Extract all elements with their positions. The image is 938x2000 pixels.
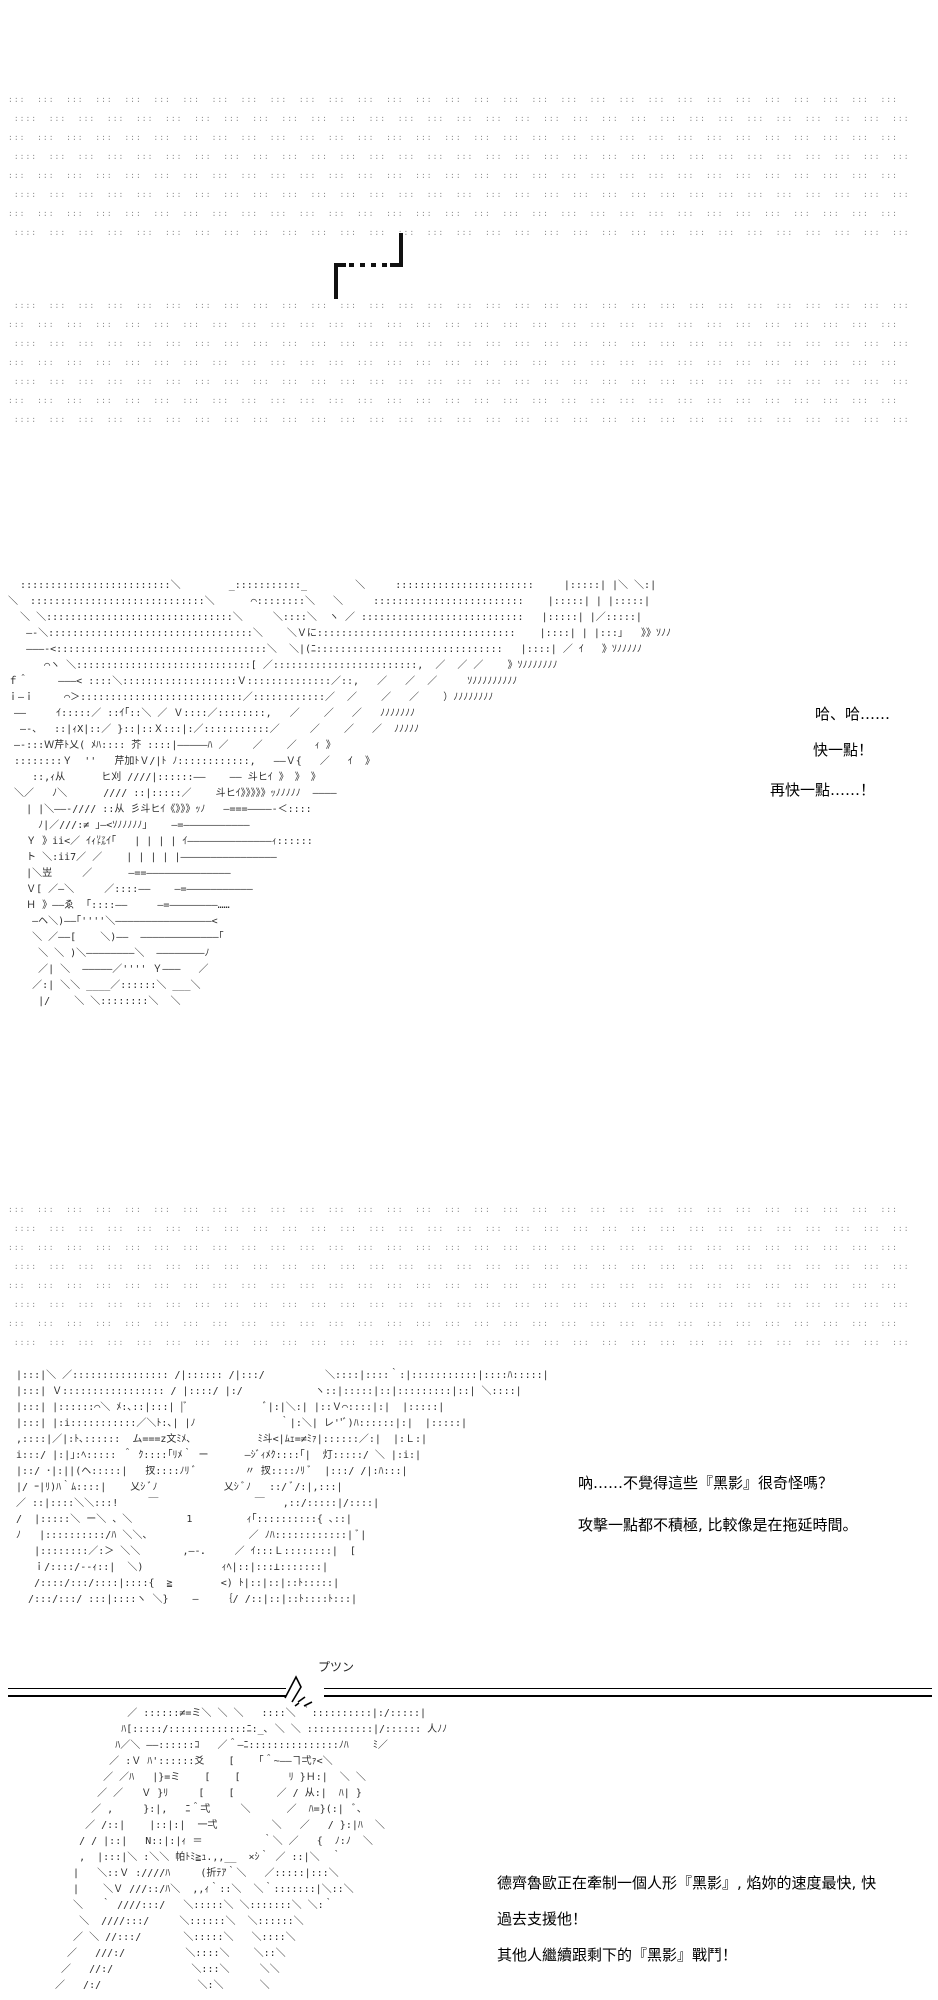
- crowd-pattern-block-2: :::: ::: ::: ::: ::: ::: ::: ::: ::: :::…: [8, 296, 921, 429]
- speech-ha-ha: 哈、哈……: [813, 705, 892, 723]
- scene-break-divider-left: [8, 1688, 286, 1697]
- speech-faster: 快一點！: [811, 741, 875, 759]
- crowd-pattern-block-1: ::: ::: ::: ::: ::: ::: ::: ::: ::: ::: …: [8, 90, 921, 242]
- snap-zigzag-icon: [283, 1674, 327, 1710]
- aa-comic-page: ::: ::: ::: ::: ::: ::: ::: ::: ::: ::: …: [0, 0, 938, 2000]
- scene-break-divider-right: [324, 1688, 932, 1697]
- speech-order-fight: 其他人繼續跟剩下的『黑影』戰鬥！: [495, 1946, 739, 1964]
- two-characters-ascii-art: |:::|＼ ／:::::::::::::::: /|:::::: /|:::/…: [10, 1368, 549, 1608]
- speech-order-support-2: 過去支援他！: [495, 1910, 589, 1928]
- character-closeup-ascii-art: ／ ::::::≠=ミ＼ ＼ ＼ ::::＼ ｀::::::::::|:/:::…: [55, 1706, 447, 1994]
- speech-order-support-1: 德齊魯歐正在牽制一個人形『黑影』, 焰妳的速度最快, 快: [495, 1874, 878, 1892]
- speech-even-faster: 再快一點……！: [768, 781, 877, 799]
- scene-connector-line: [330, 231, 410, 301]
- crowd-pattern-block-3: ::: ::: ::: ::: ::: ::: ::: ::: ::: ::: …: [8, 1200, 921, 1352]
- action-scene-ascii-art: :::::::::::::::::::::::::＼ _:::::::::::_…: [2, 578, 671, 1010]
- speech-shadows-strange: 吶……不覺得這些『黑影』很奇怪嗎？: [576, 1474, 835, 1492]
- speech-stalling-time: 攻擊一點都不積極, 比較像是在拖延時間。: [576, 1516, 860, 1534]
- snap-sfx-label: プツン: [318, 1658, 354, 1675]
